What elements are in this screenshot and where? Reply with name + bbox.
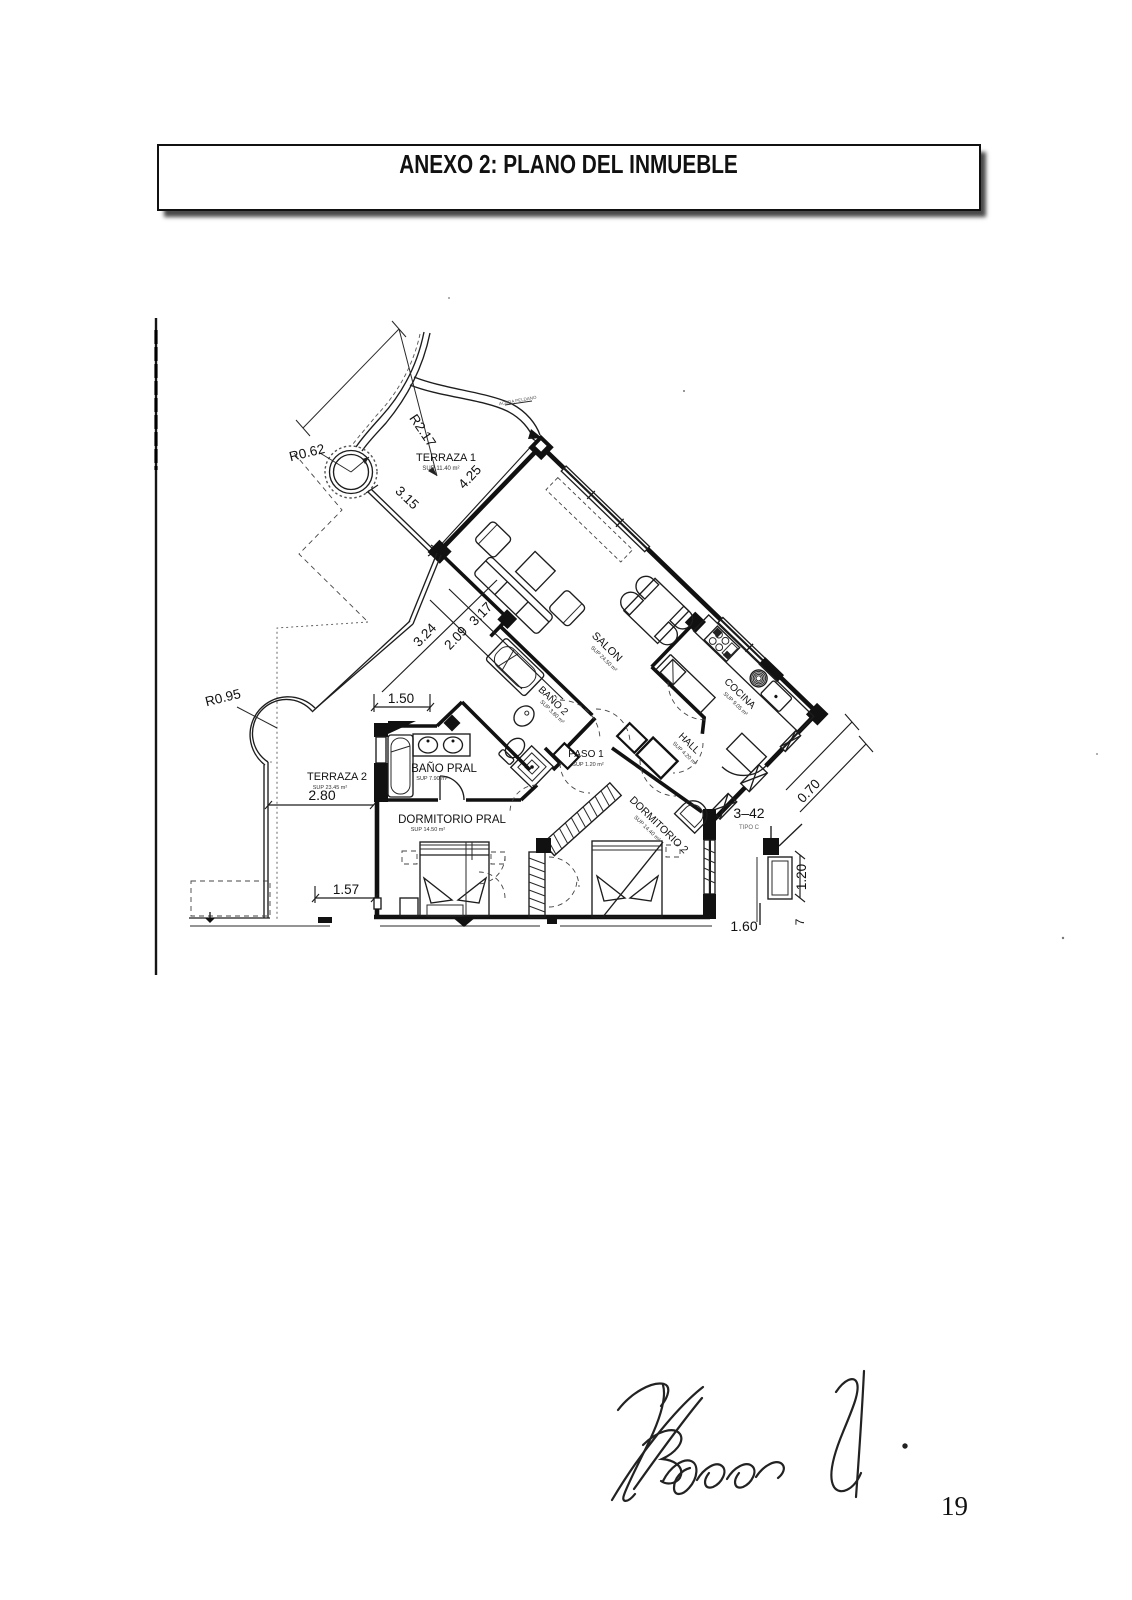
svg-text:TIPO C: TIPO C bbox=[739, 825, 760, 831]
svg-text:TERRAZA 2: TERRAZA 2 bbox=[307, 771, 367, 783]
svg-text:19: 19 bbox=[941, 1491, 968, 1521]
svg-text:1.50: 1.50 bbox=[388, 691, 414, 706]
svg-text:DORMITORIO PRAL: DORMITORIO PRAL bbox=[398, 814, 506, 826]
svg-text:3.24: 3.24 bbox=[410, 620, 439, 650]
svg-text:SUP 11.40 m²: SUP 11.40 m² bbox=[422, 466, 459, 472]
svg-text:2.09: 2.09 bbox=[441, 623, 470, 652]
svg-text:7: 7 bbox=[793, 918, 807, 925]
svg-text:R0.95: R0.95 bbox=[204, 686, 243, 709]
svg-text:1.20: 1.20 bbox=[794, 864, 809, 890]
svg-text:ACERA PELDANO: ACERA PELDANO bbox=[499, 395, 538, 407]
svg-text:TERRAZA 1: TERRAZA 1 bbox=[416, 452, 476, 464]
svg-text:3.15: 3.15 bbox=[392, 483, 421, 512]
svg-text:R2.17: R2.17 bbox=[406, 411, 439, 449]
svg-text:1.57: 1.57 bbox=[333, 882, 359, 897]
svg-text:SUP 1.20 m²: SUP 1.20 m² bbox=[572, 762, 604, 768]
svg-text:PASO 1: PASO 1 bbox=[568, 749, 604, 760]
svg-text:0.70: 0.70 bbox=[794, 776, 823, 805]
svg-text:2.80: 2.80 bbox=[308, 787, 335, 803]
svg-text:1.60: 1.60 bbox=[730, 918, 757, 934]
svg-text:BAÑO PRAL: BAÑO PRAL bbox=[411, 762, 477, 775]
svg-text:4.25: 4.25 bbox=[455, 462, 484, 491]
svg-text:R0.62: R0.62 bbox=[288, 441, 327, 464]
svg-text:SUP 7.90 m²: SUP 7.90 m² bbox=[416, 776, 448, 782]
svg-text:3–42: 3–42 bbox=[733, 805, 764, 821]
svg-text:SUP 14.50 m²: SUP 14.50 m² bbox=[411, 827, 446, 833]
